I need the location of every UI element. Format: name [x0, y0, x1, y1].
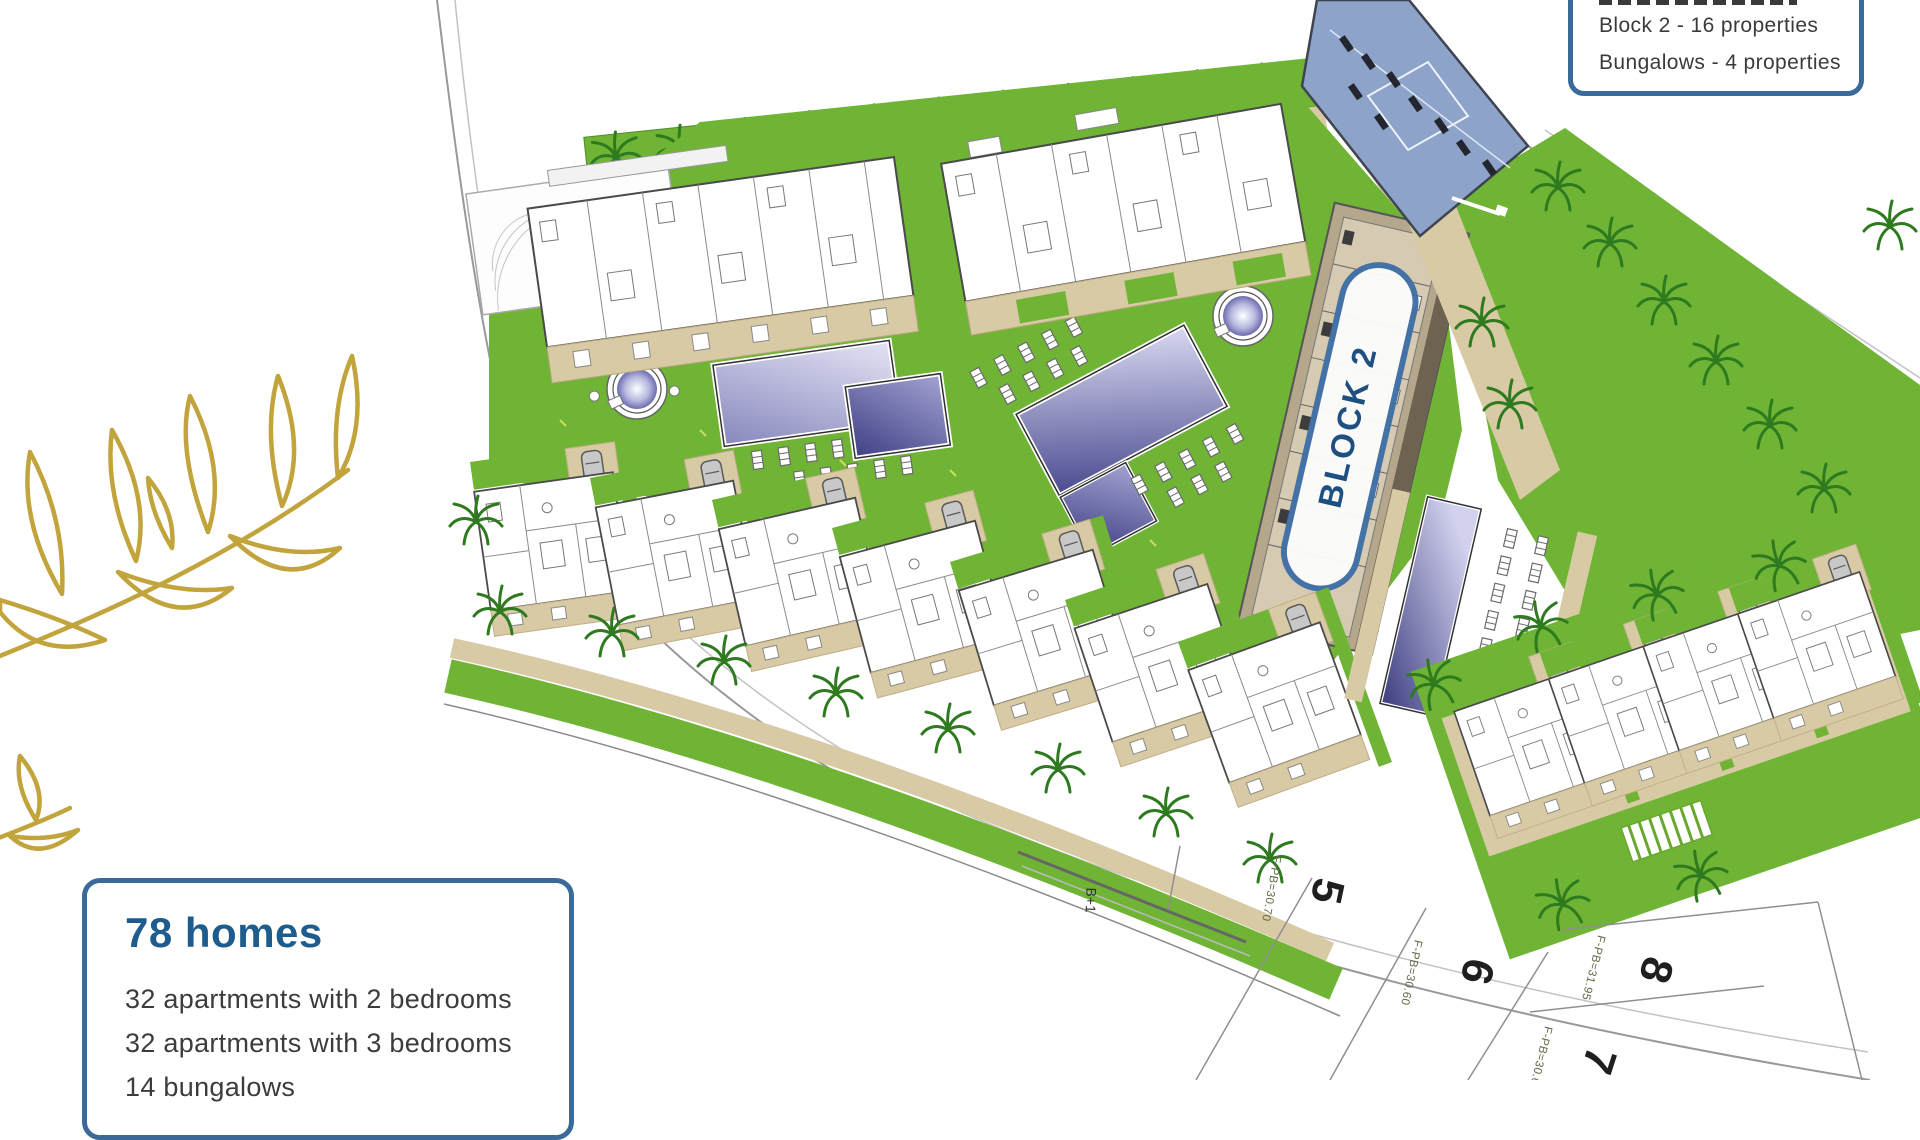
level-label-plot7: F-PB=30.60 — [1526, 1025, 1554, 1080]
plot-number-7: 7 — [1572, 1041, 1626, 1079]
legend-line-block2: Block 2 - 16 properties — [1599, 14, 1859, 38]
legend-line-bungalows: Bungalows - 4 properties — [1599, 51, 1859, 75]
homes-total-title: 78 homes — [125, 909, 569, 957]
summary-line-3bed: 32 apartments with 3 bedrooms — [125, 1021, 569, 1065]
olive-branch-art — [0, 356, 358, 849]
plot-number-5: 5 — [1301, 874, 1354, 908]
legend-card: Block 2 - 16 properties Bungalows - 4 pr… — [1568, 0, 1864, 96]
fountain-east — [1213, 286, 1273, 346]
plot-number-6: 6 — [1450, 954, 1503, 990]
summary-line-bungalows: 14 bungalows — [125, 1065, 569, 1109]
summary-card: 78 homes 32 apartments with 2 bedrooms 3… — [82, 878, 574, 1140]
level-label-plot6: F-PB=30.60 — [1398, 939, 1424, 1007]
height-note: B+1 — [1083, 887, 1100, 913]
level-label-plot8: F-PB=31.95 — [1579, 934, 1607, 1002]
plot-number-8: 8 — [1629, 951, 1683, 988]
summary-line-2bed: 32 apartments with 2 bedrooms — [125, 977, 569, 1021]
clipped-text-line — [1599, 0, 1797, 5]
